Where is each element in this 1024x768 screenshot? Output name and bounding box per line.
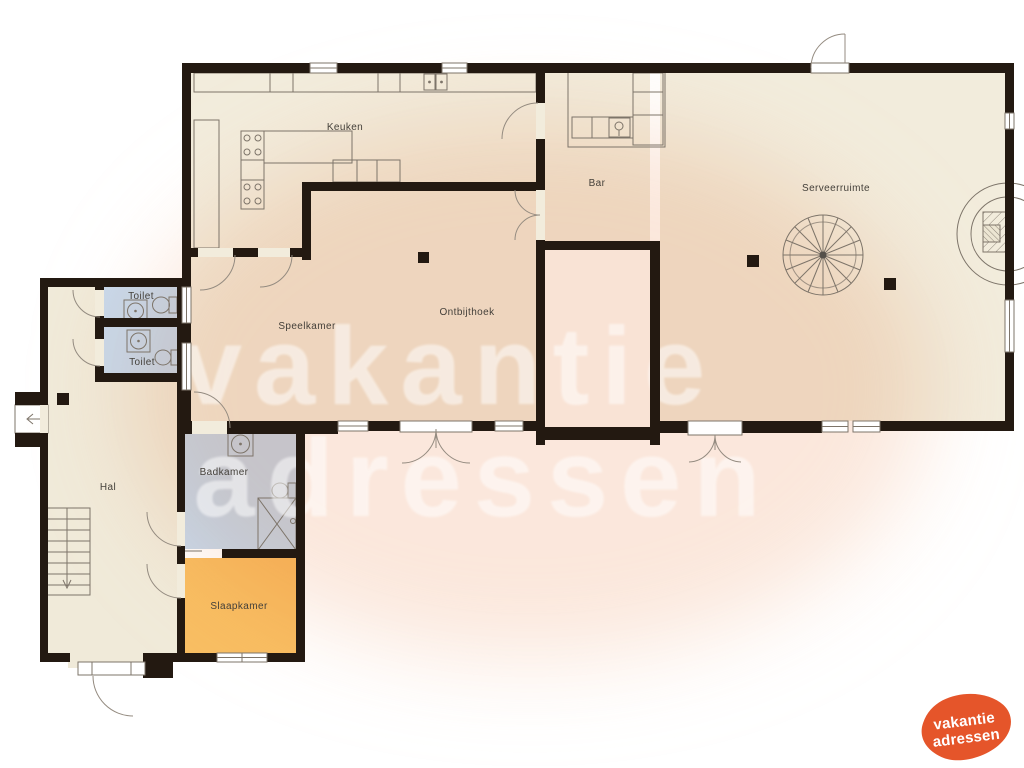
room-label-toilet-bottom: Toilet xyxy=(129,357,155,368)
watermark-line2: adressen xyxy=(193,417,772,540)
floor-plan-page: vakantie adressen xyxy=(0,0,1024,768)
window xyxy=(1005,113,1014,129)
window xyxy=(338,421,368,431)
floor-plan: vakantie adressen xyxy=(0,0,1024,768)
room-label-keuken: Keuken xyxy=(327,122,363,133)
column xyxy=(747,255,759,267)
window xyxy=(1005,300,1014,352)
window xyxy=(822,421,848,432)
room-label-speelkamer: Speelkamer xyxy=(278,321,336,332)
window xyxy=(217,653,267,662)
window xyxy=(853,421,880,432)
entrance-door xyxy=(78,662,145,716)
niche-opening xyxy=(40,405,48,433)
window xyxy=(182,287,191,323)
room-label-bar: Bar xyxy=(589,178,606,189)
vakantieadressen-logo: vakantie adressen xyxy=(918,689,1015,765)
room-label-ontbijthoek: Ontbijthoek xyxy=(440,307,496,318)
window xyxy=(310,63,337,73)
room-label-slaapkamer: Slaapkamer xyxy=(210,601,268,612)
column xyxy=(57,393,69,405)
window xyxy=(182,343,191,390)
room-label-serveerruimte: Serveerruimte xyxy=(802,183,870,194)
door-serveerruimte-back xyxy=(811,34,849,73)
column xyxy=(884,278,896,290)
window xyxy=(495,421,523,431)
watermark-line1: vakantie xyxy=(181,305,717,428)
room-label-badkamer: Badkamer xyxy=(200,467,249,478)
window xyxy=(442,63,467,73)
spiral-staircase xyxy=(783,215,863,295)
room-label-hal: Hal xyxy=(100,482,116,493)
room-label-toilet-top: Toilet xyxy=(128,291,154,302)
column xyxy=(418,252,429,263)
